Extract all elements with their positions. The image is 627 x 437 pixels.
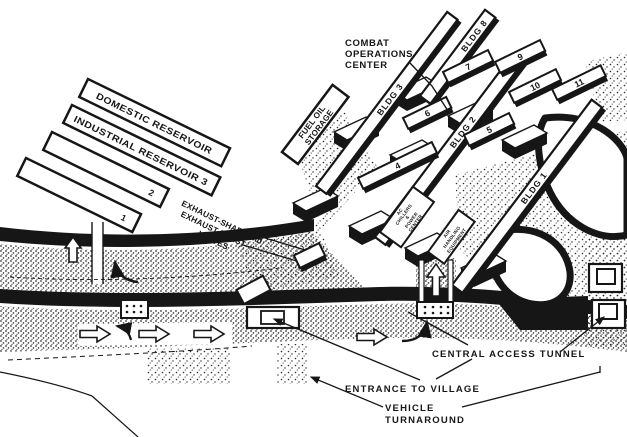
coc-label-2: OPERATIONS [345,49,413,60]
right-portal-upper [589,264,622,292]
facility-cutaway-diagram: DOMESTIC RESERVOIR INDUSTRIAL RESERVOIR … [0,0,627,437]
right-portal-lower [592,300,625,328]
coc-label-3: CENTER [345,60,388,71]
coc-label-1: COMBAT [345,38,390,49]
vent-slit [92,222,103,284]
vehicle-turnaround-label-1: VEHICLE [385,403,435,414]
portal-opening [597,269,615,284]
entrance-to-village-label: ENTRANCE TO VILLAGE [345,384,480,395]
portal-opening [599,304,617,319]
entrance-leader-right [436,359,472,379]
diagram-canvas: DOMESTIC RESERVOIR INDUSTRIAL RESERVOIR … [0,0,627,437]
vehicle-turnaround-label-2: TURNAROUND [385,415,465,426]
shaft-grille [417,302,453,318]
turnaround-leader-right [462,372,600,407]
blast-valve-grille [121,295,148,318]
vehicle-turnaround-callout: VEHICLE TURNAROUND [311,366,600,426]
central-vent-shaft [417,260,453,318]
central-access-tunnel-label: CENTRAL ACCESS TUNNEL [432,349,585,360]
